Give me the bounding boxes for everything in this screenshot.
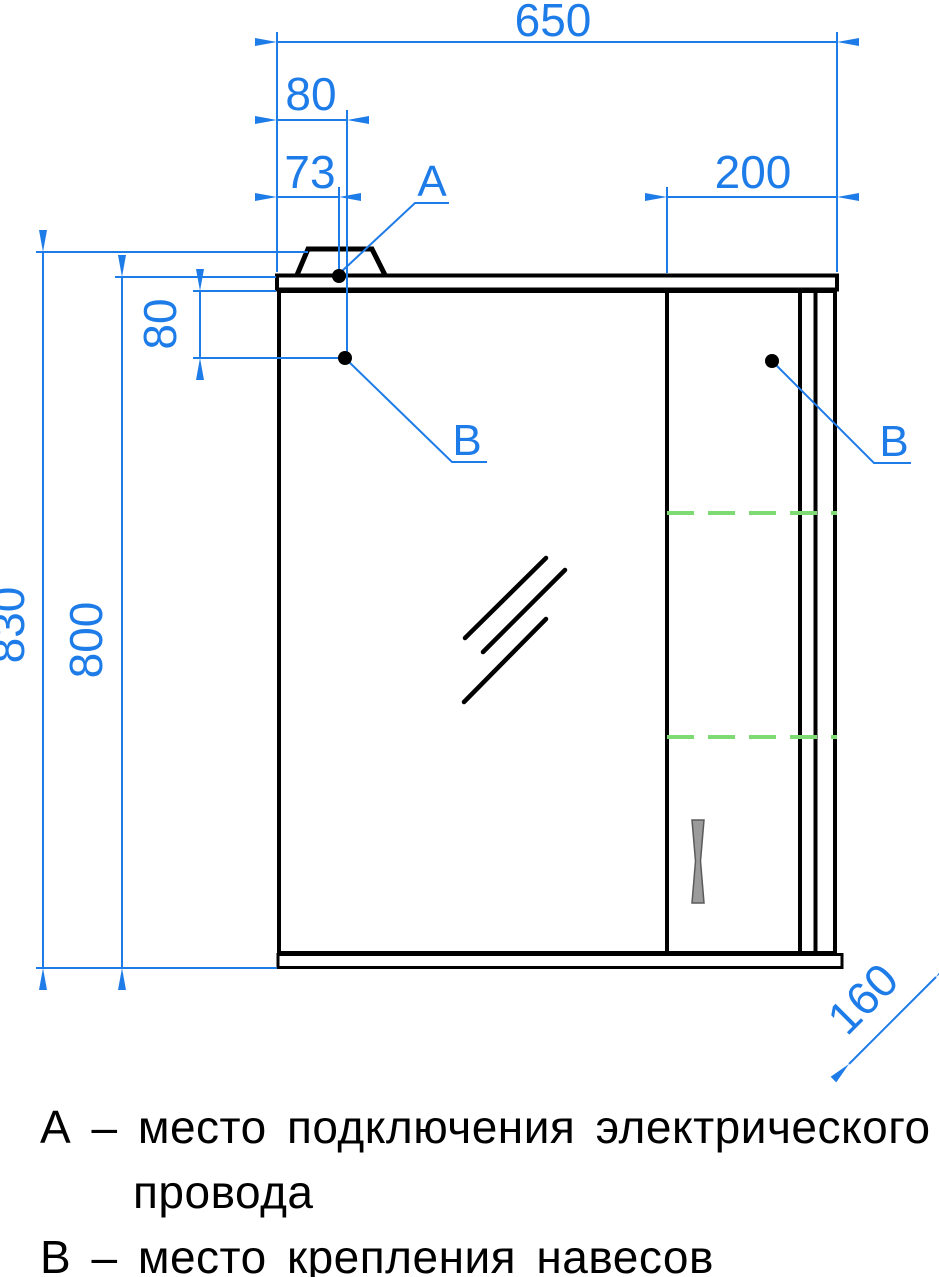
dim-hinge-drop: 80 [134, 291, 200, 358]
dim-80-top-value: 80 [285, 68, 336, 120]
cabinet-drawing: 650 80 73 200 830 [0, 0, 939, 1277]
dim-total-width: 650 [277, 0, 837, 46]
leader-point-a: А [341, 157, 449, 272]
legend-line-b: В – место крепления навесов [40, 1230, 714, 1277]
point-b-left-dot [338, 351, 352, 365]
right-section [667, 291, 835, 953]
point-a-dot [332, 269, 346, 283]
dim-200-value: 200 [715, 146, 792, 198]
point-b-right-label: В [879, 417, 908, 466]
dim-73-value: 73 [284, 146, 335, 198]
dim-body-height: 800 [60, 277, 122, 968]
dim-wire-offset: 73 [277, 146, 339, 198]
dim-830-value: 830 [0, 587, 34, 664]
bottom-strip [278, 955, 842, 968]
cabinet-body [277, 249, 842, 968]
dim-650-value: 650 [515, 0, 592, 46]
legend-line-a: А – место подключения электрического [40, 1100, 931, 1154]
point-b-right-dot [765, 354, 779, 368]
leader-point-b-left: В [348, 361, 487, 465]
mirror-door [279, 291, 667, 953]
dim-800-value: 800 [60, 602, 112, 679]
shelf-lines [667, 513, 837, 737]
door-handle [692, 820, 704, 903]
dim-total-height: 830 [0, 252, 43, 968]
dimension-annotations: 650 80 73 200 830 [0, 0, 936, 1064]
dim-right-section-width: 200 [667, 146, 837, 198]
legend-line-a-cont: провода [133, 1165, 314, 1219]
mirror-hatch [464, 558, 565, 702]
top-panel [277, 276, 837, 290]
dim-lamp-offset: 80 [277, 68, 347, 120]
leader-point-b-right: В [775, 364, 911, 466]
technical-drawing-page: 650 80 73 200 830 [0, 0, 939, 1277]
point-b-left-label: В [452, 416, 481, 465]
point-a-label: А [417, 157, 447, 206]
dim-depth: 160 [817, 953, 936, 1064]
dim-80-left-value: 80 [134, 298, 186, 349]
